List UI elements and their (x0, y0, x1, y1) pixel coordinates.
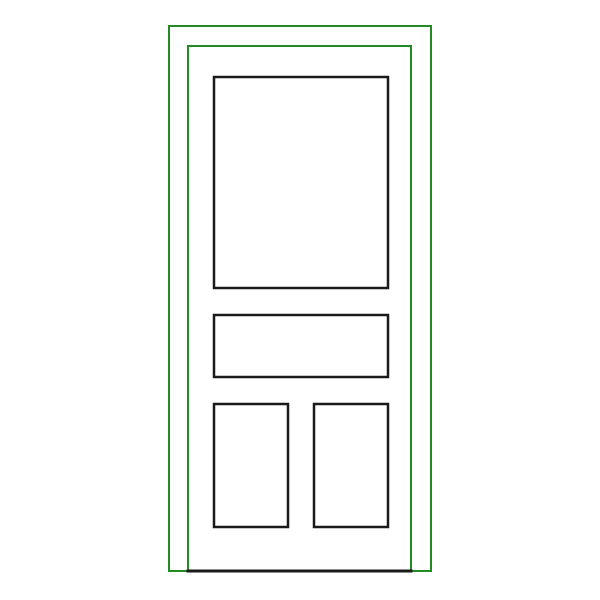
door-panel-bottom-right (314, 404, 388, 527)
door-panel-middle (214, 315, 388, 377)
door-drawing (0, 0, 600, 600)
door-panel-top (214, 77, 388, 288)
door-frame-inner (188, 46, 411, 571)
door-panel-bottom-left (214, 404, 288, 527)
door-diagram-canvas (0, 0, 600, 600)
door-frame-outer (169, 26, 431, 571)
